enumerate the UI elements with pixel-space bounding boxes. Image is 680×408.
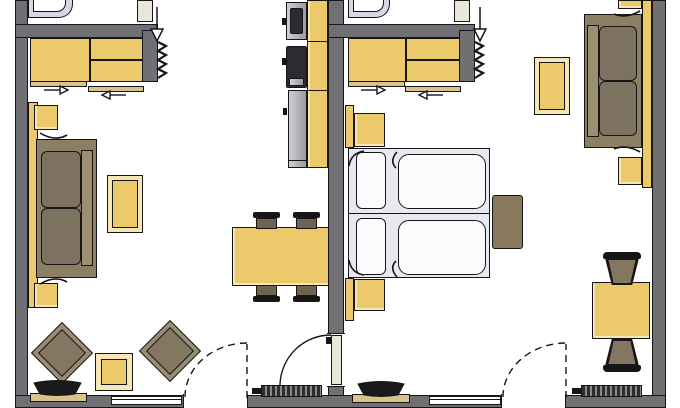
left-sofa-cushion <box>41 151 81 208</box>
right-sofa-cushion <box>599 81 637 136</box>
kitchen-worktop <box>307 0 328 168</box>
left-occasional-table <box>95 353 133 391</box>
dining-table <box>232 227 329 286</box>
left-sofa <box>36 139 97 278</box>
left-tv-lowboard <box>30 393 87 402</box>
kitchen-cooktop-panel <box>289 78 304 86</box>
left-side-table-bottom <box>34 283 58 308</box>
dining-chair <box>253 285 280 302</box>
kitchen-refrigerator <box>288 90 307 168</box>
bed-pillow-top <box>356 152 386 209</box>
left-coat-hooks <box>158 42 166 78</box>
appliance-knob <box>283 108 287 115</box>
right-entry-wall-stub <box>459 30 475 82</box>
right-radiator-valve <box>572 388 581 394</box>
left-sofa-front-edge <box>81 150 93 266</box>
left-entry-wall-stub <box>142 30 158 82</box>
dining-chair <box>293 285 320 302</box>
left-side-table-top <box>34 105 58 130</box>
left-wardrobe-door-b-bottom <box>90 60 143 82</box>
left-coffee-table <box>107 175 143 233</box>
right-side-table-top <box>618 0 642 9</box>
right-entry-door-leaf <box>454 0 470 22</box>
bed-pillow-bottom <box>356 218 386 275</box>
right-nightstand-console-bottom <box>345 278 354 321</box>
right-shower-basin <box>353 0 384 12</box>
dining-chair <box>253 212 280 229</box>
left-wardrobe-track-a <box>30 81 87 87</box>
lounge-chair-seat <box>146 327 194 375</box>
right-outer-wall <box>652 0 666 408</box>
left-lounge-chair-a <box>31 322 93 384</box>
left-wardrobe-door-a <box>30 38 90 82</box>
connecting-door-hinge <box>326 337 332 344</box>
left-entry-door-leaf <box>137 0 153 22</box>
right-nightstand-bottom <box>354 279 385 311</box>
right-barrel-chair-bottom <box>603 339 641 372</box>
left-bathroom-wall <box>15 24 158 38</box>
right-wall-console <box>642 0 652 188</box>
right-nightstand-console-top <box>345 105 354 148</box>
right-wardrobe-door-b-top <box>406 38 460 60</box>
right-balcony-door-swing <box>503 343 566 398</box>
appliance-knob <box>282 58 286 65</box>
right-wardrobe-door-a <box>348 38 406 82</box>
right-balcony-door-opening <box>501 394 566 408</box>
kitchen-sink-basin <box>290 8 303 34</box>
right-sofa <box>584 14 642 148</box>
right-entry-arrow <box>474 7 486 41</box>
right-wardrobe-track-b <box>405 86 461 92</box>
right-barrel-chair-top <box>603 252 641 285</box>
left-shower-basin <box>33 0 66 12</box>
dining-chair <box>293 212 320 229</box>
right-side-table-bottom <box>618 157 642 185</box>
kitchen-refrigerator-door-line <box>288 160 307 161</box>
right-bathroom-wall <box>328 24 475 38</box>
left-shower-tray <box>28 0 73 18</box>
right-wardrobe-door-b-bottom <box>406 60 460 82</box>
right-radiator <box>581 385 642 397</box>
left-wardrobe-track-b <box>88 86 144 92</box>
right-square-table <box>592 282 650 339</box>
kitchen-worktop-joint <box>307 90 328 91</box>
right-wardrobe-track-a <box>348 81 405 87</box>
right-coat-hooks <box>475 42 483 78</box>
bed-foot-bench <box>492 195 523 249</box>
left-outer-wall <box>15 0 28 408</box>
appliance-knob <box>282 18 286 25</box>
right-sofa-front-edge <box>587 25 599 137</box>
kitchen-worktop-joint <box>307 41 328 42</box>
lounge-chair-seat <box>38 329 86 377</box>
left-wardrobe-door-b-top <box>90 38 143 60</box>
bed-divider-line <box>348 213 490 214</box>
bed-duvet-top <box>398 154 486 209</box>
right-sofa-cushion <box>599 26 637 81</box>
bed-duvet-bottom <box>398 220 486 275</box>
left-balcony-door-opening <box>183 394 248 408</box>
floor-plan <box>0 0 680 408</box>
left-window <box>111 396 182 405</box>
right-shower-tray <box>348 0 390 18</box>
left-sofa-cushion <box>41 208 81 265</box>
connecting-door-leaf <box>331 335 342 385</box>
right-coffee-table <box>534 57 570 115</box>
right-nightstand-top <box>354 113 385 147</box>
right-window <box>429 396 501 405</box>
right-tv-lowboard <box>352 394 410 403</box>
connecting-door-swing <box>280 335 331 386</box>
left-lounge-chair-b <box>139 320 201 382</box>
left-radiator-valve <box>252 388 261 394</box>
left-radiator <box>261 385 322 397</box>
